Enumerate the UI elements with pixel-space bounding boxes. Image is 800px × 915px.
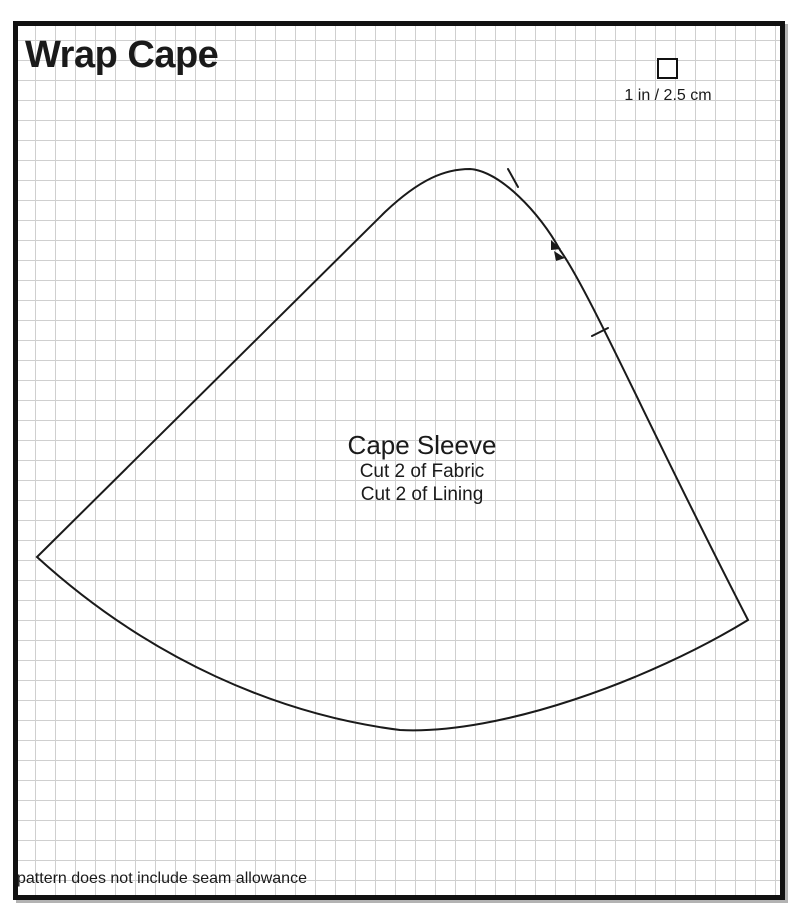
piece-label: Cape Sleeve Cut 2 of Fabric Cut 2 of Lin… [272,430,572,506]
scale-square-icon [657,58,678,79]
piece-cut-lining: Cut 2 of Lining [272,483,572,506]
pattern-page: Wrap Cape 1 in / 2.5 cm Cape Sleeve Cut … [0,0,800,915]
page-title: Wrap Cape [25,36,218,74]
piece-name: Cape Sleeve [272,430,572,460]
seam-allowance-note: pattern does not include seam allowance [17,870,307,888]
scale-label: 1 in / 2.5 cm [603,87,733,105]
piece-cut-fabric: Cut 2 of Fabric [272,460,572,483]
